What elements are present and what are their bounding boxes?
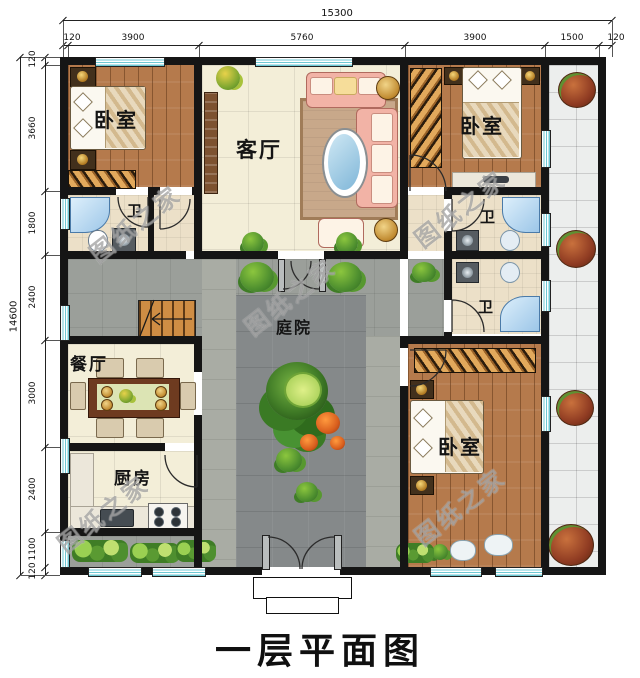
side-table bbox=[376, 76, 400, 100]
plant bbox=[216, 66, 240, 90]
dim-guide bbox=[599, 46, 600, 57]
window bbox=[541, 396, 551, 432]
dim-guide bbox=[46, 191, 60, 192]
wall bbox=[400, 386, 408, 567]
room-label-bedroom-top-right: 卧室 bbox=[460, 110, 504, 139]
cabinet bbox=[204, 92, 218, 194]
dining-table bbox=[88, 378, 180, 418]
window bbox=[541, 280, 551, 312]
dim-guide bbox=[21, 575, 60, 576]
window bbox=[95, 57, 165, 67]
room-label-bedroom-top-left: 卧室 bbox=[94, 104, 138, 133]
wall bbox=[60, 187, 116, 195]
courtyard-walkway-right bbox=[366, 336, 400, 567]
entry-step bbox=[253, 577, 352, 599]
nightstand bbox=[70, 67, 96, 87]
wall bbox=[192, 187, 202, 195]
window bbox=[60, 305, 70, 341]
dim-guide bbox=[21, 57, 60, 58]
dim-seg: 120 bbox=[28, 39, 38, 79]
wall bbox=[202, 251, 278, 259]
lounge-seat bbox=[484, 534, 513, 556]
washing-machine bbox=[456, 230, 479, 251]
nightstand bbox=[410, 476, 434, 495]
courtyard-tree-crown bbox=[284, 372, 322, 408]
dim-total-width: 15300 bbox=[321, 8, 353, 19]
dim-seg: 120 bbox=[607, 33, 624, 43]
window bbox=[88, 567, 142, 577]
dim-seg: 5760 bbox=[291, 33, 314, 43]
dim-seg: 2400 bbox=[28, 277, 38, 317]
drawing-title: 一层平面图 bbox=[0, 622, 640, 674]
room-label-bath-right-lower: 卫 bbox=[478, 296, 495, 317]
courtyard-bush bbox=[296, 482, 318, 502]
corridor-plant bbox=[412, 262, 436, 282]
dimension-line bbox=[63, 45, 612, 46]
dim-seg: 120 bbox=[28, 551, 38, 591]
courtyard-walkway-left bbox=[202, 259, 236, 567]
entry-step bbox=[266, 597, 339, 614]
chair bbox=[136, 418, 164, 438]
nightstand bbox=[444, 67, 464, 85]
window bbox=[541, 213, 551, 247]
dim-guide bbox=[68, 46, 69, 57]
nightstand bbox=[70, 150, 96, 170]
wall bbox=[194, 57, 202, 259]
wall bbox=[444, 251, 541, 259]
wardrobe bbox=[414, 348, 536, 373]
flower-cluster bbox=[330, 436, 345, 450]
dimension-line bbox=[45, 57, 46, 575]
chair bbox=[136, 358, 164, 378]
dim-guide bbox=[46, 447, 60, 448]
dim-guide bbox=[46, 255, 60, 256]
dim-guide bbox=[46, 532, 60, 533]
dim-guide bbox=[199, 46, 200, 57]
wall bbox=[400, 336, 549, 344]
dim-seg: 1800 bbox=[28, 203, 38, 243]
room-label-dining: 餐厅 bbox=[70, 350, 108, 375]
dimension-line bbox=[63, 20, 612, 21]
wall bbox=[194, 415, 202, 567]
window bbox=[255, 57, 353, 67]
dim-seg: 120 bbox=[63, 33, 80, 43]
window bbox=[495, 567, 543, 577]
flower-cluster bbox=[316, 412, 340, 434]
flower-bed bbox=[130, 543, 180, 563]
lounge-seat bbox=[450, 540, 476, 561]
sink bbox=[500, 230, 520, 251]
side-porch-floor bbox=[549, 65, 598, 567]
dim-seg: 3660 bbox=[28, 108, 38, 148]
wardrobe bbox=[410, 68, 442, 168]
porch-shrub bbox=[548, 524, 594, 566]
stove bbox=[148, 503, 188, 529]
chair bbox=[180, 382, 196, 410]
floor-plan-sheet: 卧室 客厅 卧室 卫 卫 卫 餐厅 庭院 厨房 卧室 图纸之家 图纸之家 图纸之… bbox=[0, 0, 640, 678]
wall bbox=[60, 443, 165, 451]
porch-shrub bbox=[556, 230, 596, 268]
wall bbox=[60, 336, 202, 344]
dim-seg: 1500 bbox=[561, 33, 584, 43]
sofa bbox=[306, 72, 386, 108]
dim-guide bbox=[405, 46, 406, 57]
dim-seg: 2400 bbox=[28, 469, 38, 509]
washing-machine bbox=[456, 262, 479, 283]
porch-shrub bbox=[558, 72, 596, 108]
dim-total-height: 14600 bbox=[9, 291, 20, 343]
room-label-living: 客厅 bbox=[236, 134, 282, 164]
staircase bbox=[138, 300, 196, 340]
window bbox=[541, 130, 551, 168]
window bbox=[430, 567, 482, 577]
dim-seg: 3900 bbox=[122, 33, 145, 43]
flower-cluster bbox=[300, 434, 318, 451]
nightstand bbox=[520, 67, 540, 85]
wall bbox=[197, 443, 202, 451]
dim-guide bbox=[545, 46, 546, 57]
window bbox=[60, 198, 70, 230]
window bbox=[60, 438, 70, 474]
chair bbox=[96, 418, 124, 438]
wall bbox=[598, 57, 606, 575]
wall bbox=[444, 231, 452, 300]
courtyard-bush bbox=[276, 448, 302, 472]
door-leaf bbox=[334, 535, 342, 570]
chair bbox=[70, 382, 86, 410]
dim-seg: 3900 bbox=[464, 33, 487, 43]
sink bbox=[500, 262, 520, 283]
nightstand bbox=[410, 380, 434, 399]
dim-guide bbox=[46, 340, 60, 341]
side-table bbox=[374, 218, 398, 242]
porch-shrub bbox=[556, 390, 594, 426]
room-label-bedroom-bottom-right: 卧室 bbox=[438, 431, 482, 460]
door-leaf bbox=[262, 535, 270, 570]
coffee-table bbox=[322, 128, 368, 198]
dim-guide bbox=[46, 65, 60, 66]
window bbox=[152, 567, 206, 577]
dim-seg: 3000 bbox=[28, 373, 38, 413]
dimension-line bbox=[20, 57, 21, 575]
wall bbox=[324, 251, 408, 259]
